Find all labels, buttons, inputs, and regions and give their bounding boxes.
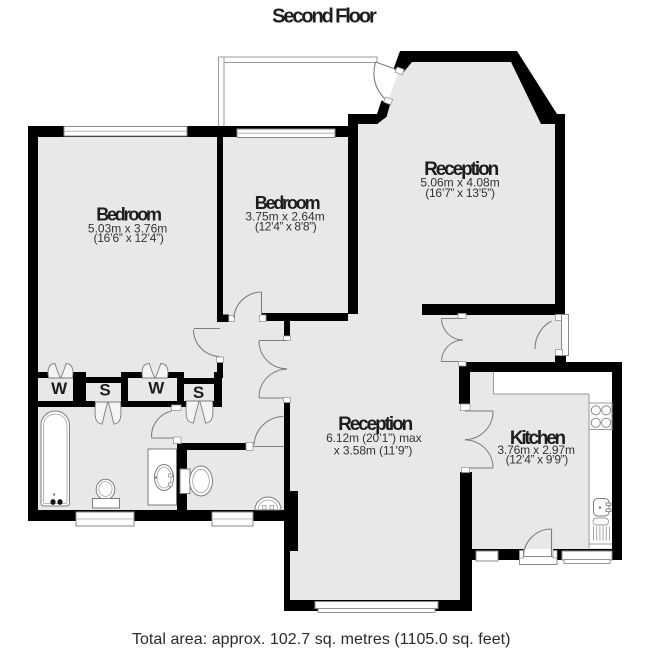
svg-text:S: S: [99, 381, 110, 400]
svg-text:Second Floor: Second Floor: [272, 5, 377, 27]
svg-text:W: W: [51, 379, 68, 398]
svg-text:S: S: [193, 383, 204, 402]
svg-text:(16’7” x 13’5”): (16’7” x 13’5”): [425, 186, 495, 200]
svg-text:W: W: [148, 379, 165, 398]
svg-text:(12’4” x 8’8”): (12’4” x 8’8”): [255, 220, 317, 234]
svg-text:(16’6” x 12’4”): (16’6” x 12’4”): [94, 231, 164, 245]
svg-text:x 3.58m (11’9”): x 3.58m (11’9”): [334, 444, 413, 458]
svg-text:(12’4” x 9’9”): (12’4” x 9’9”): [506, 453, 569, 467]
svg-text:Total area: approx. 102.7 sq.: Total area: approx. 102.7 sq. metres (11…: [132, 631, 511, 648]
